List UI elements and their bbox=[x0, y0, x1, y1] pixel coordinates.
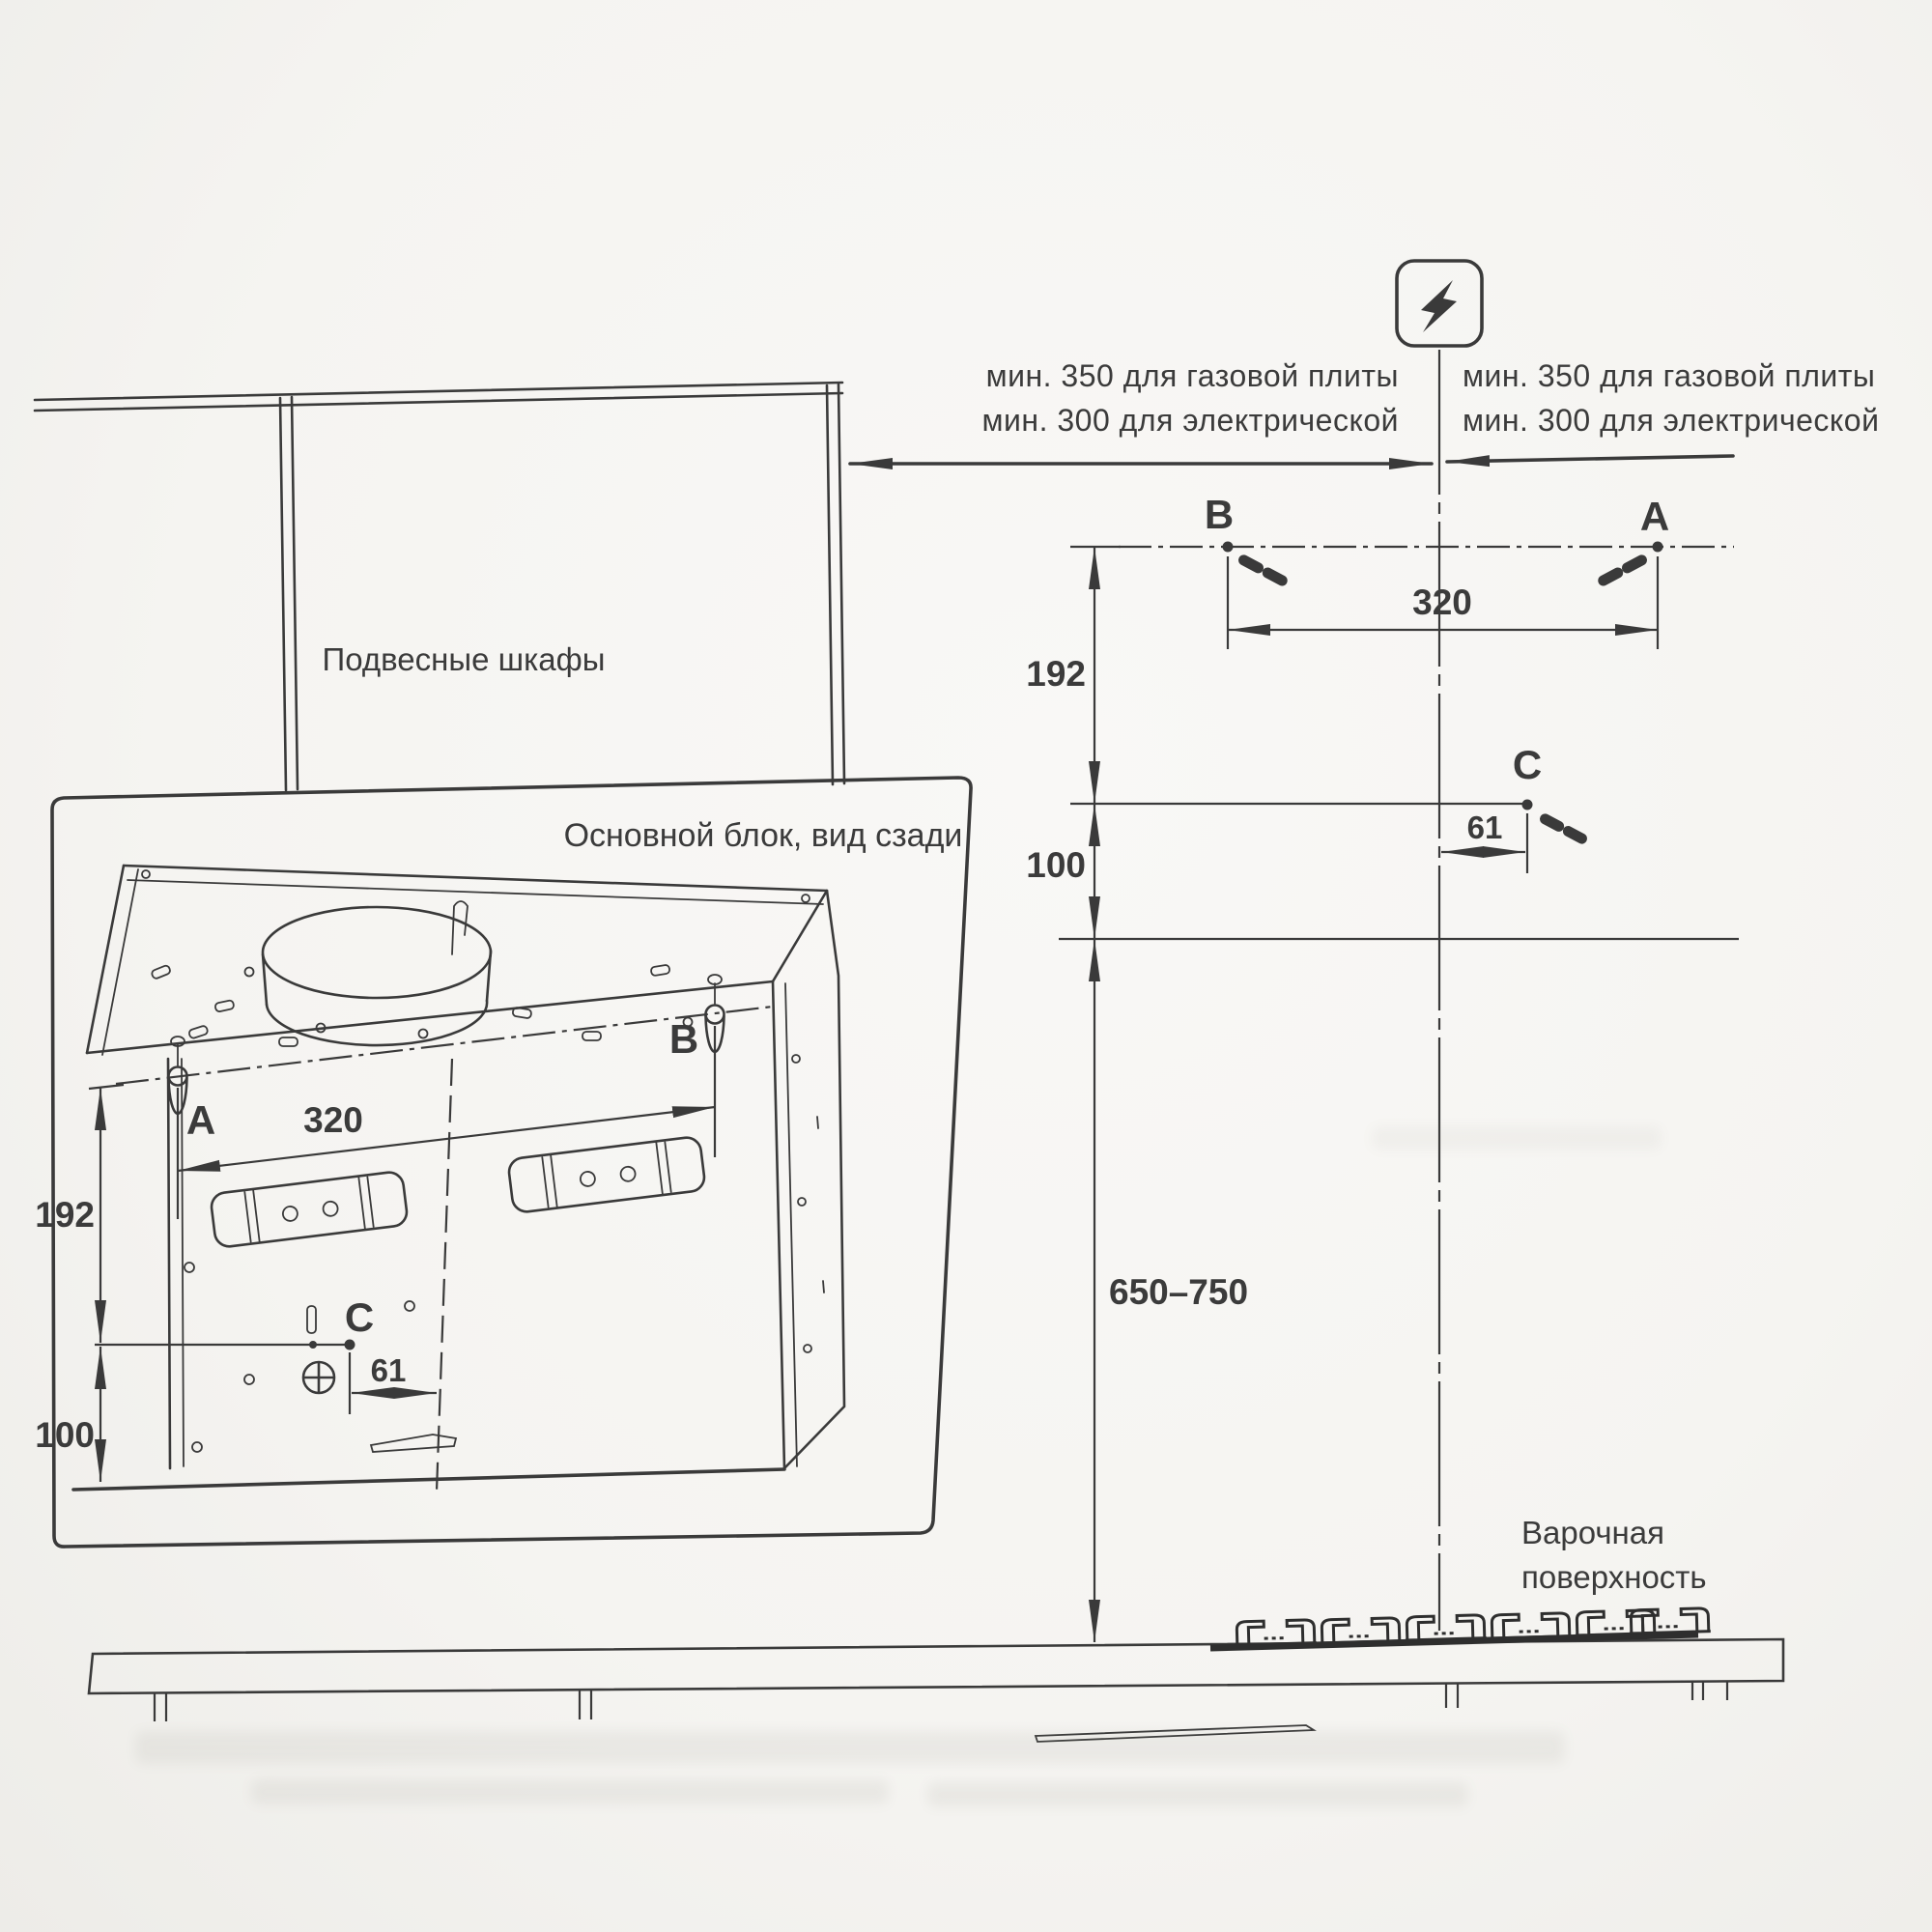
inset-192-top-tick bbox=[89, 1085, 124, 1089]
inset-center-dashed-line bbox=[437, 1059, 452, 1492]
scan-bleedthrough-smudge bbox=[927, 1782, 1468, 1807]
cooktop-label-line1: Варочная bbox=[1521, 1515, 1664, 1550]
wall-point-a bbox=[1653, 542, 1663, 553]
phillips-screw-icon bbox=[303, 1362, 334, 1393]
screw-icon-b bbox=[1244, 560, 1285, 582]
cabinet-right-edge-2 bbox=[838, 384, 844, 783]
hood-left-inner-edge-2 bbox=[182, 1059, 184, 1466]
screw-icon-a bbox=[1601, 560, 1641, 582]
inset-dim-61-label: 61 bbox=[371, 1352, 407, 1388]
hood-top-right-edge bbox=[773, 891, 827, 981]
cabinets-drawing: Подвесные шкафы bbox=[35, 383, 844, 790]
clearance-right-line2: мин. 300 для электрической bbox=[1463, 403, 1879, 438]
cabinet-divider-line-2 bbox=[292, 397, 298, 789]
hood-back-edge-outer bbox=[124, 866, 827, 891]
inset-rear-view: Основной блок, вид сзади bbox=[35, 778, 971, 1547]
top-face-holes bbox=[151, 964, 692, 1046]
inset-dim-100-label: 100 bbox=[35, 1415, 95, 1455]
panel-holes bbox=[185, 1055, 824, 1452]
cooktop-drawing: Варочная поверхность bbox=[89, 1515, 1783, 1742]
dim-192-label: 192 bbox=[1026, 654, 1086, 694]
wall-point-a-label: A bbox=[1640, 494, 1669, 539]
latch-piece bbox=[371, 1435, 456, 1452]
inset-title: Основной блок, вид сзади bbox=[564, 817, 963, 854]
clearance-arrow-right bbox=[1447, 456, 1733, 462]
wall-point-c bbox=[1522, 800, 1533, 810]
flange-screw-hole-left bbox=[142, 870, 150, 878]
hood-top-left-edge-inner bbox=[102, 869, 138, 1055]
slot-above-c bbox=[307, 1306, 316, 1333]
scan-bleedthrough-smudge bbox=[1372, 1126, 1662, 1150]
clearance-left-line2: мин. 300 для электрической bbox=[982, 403, 1399, 438]
cabinet-right-edge-1 bbox=[827, 385, 833, 784]
inset-point-a-label: A bbox=[186, 1097, 215, 1143]
hood-right-inner-edge-1 bbox=[773, 981, 784, 1468]
scan-bleedthrough-smudge bbox=[251, 1779, 889, 1804]
dim-650-750-label: 650–750 bbox=[1109, 1272, 1248, 1312]
inset-dim-320-label: 320 bbox=[303, 1100, 363, 1140]
inset-point-c bbox=[345, 1340, 355, 1350]
inset-point-c-label: C bbox=[345, 1294, 374, 1340]
inset-point-c-aux bbox=[309, 1341, 317, 1349]
clearance-right-line1: мин. 350 для газовой плиты bbox=[1463, 358, 1875, 393]
hood-bottom-edge bbox=[73, 1469, 784, 1490]
screw-icon-c bbox=[1546, 819, 1585, 840]
power-outlet-symbol bbox=[1397, 261, 1482, 346]
inset-dim-320-line bbox=[178, 1107, 715, 1171]
cooktop-label-line2: поверхность bbox=[1521, 1559, 1707, 1595]
wall-point-b-label: B bbox=[1205, 492, 1234, 537]
inset-dim-192-label: 192 bbox=[35, 1195, 95, 1235]
bracket-right bbox=[507, 1136, 705, 1213]
clearance-annotations: мин. 350 для газовой плиты мин. 300 для … bbox=[850, 358, 1879, 464]
diagram-canvas: Подвесные шкафы мин. 350 для газовой пли… bbox=[0, 0, 1932, 1932]
duct-collar-top bbox=[263, 907, 491, 998]
dim-100-label: 100 bbox=[1026, 845, 1086, 885]
cabinet-top-inner-line bbox=[35, 393, 842, 411]
bracket-left bbox=[210, 1171, 408, 1248]
dim-320-label: 320 bbox=[1412, 582, 1472, 622]
wall-drilling-diagram: B A 320 192 C 61 100 bbox=[1026, 350, 1739, 1642]
hood-top-left-edge bbox=[87, 866, 124, 1053]
wall-point-c-label: C bbox=[1513, 742, 1542, 787]
cabinet-divider-line-1 bbox=[280, 398, 286, 790]
cabinet-top-outer-line bbox=[35, 383, 842, 400]
duct-clip bbox=[452, 901, 468, 954]
dim-61-label: 61 bbox=[1467, 810, 1503, 845]
counter-slab bbox=[89, 1639, 1783, 1693]
scan-bleedthrough-smudge bbox=[135, 1731, 1565, 1764]
inset-point-b-label: B bbox=[669, 1016, 698, 1062]
hood-left-inner-edge-1 bbox=[168, 1059, 170, 1468]
flange-screw-hole-right bbox=[802, 895, 810, 902]
lightning-icon bbox=[1421, 280, 1457, 332]
cabinets-label: Подвесные шкафы bbox=[323, 641, 606, 677]
hood-right-panel-outline bbox=[784, 891, 844, 1468]
hood-back-edge-inner bbox=[128, 880, 823, 904]
clearance-left-line1: мин. 350 для газовой плиты bbox=[986, 358, 1399, 393]
wall-point-b bbox=[1223, 542, 1234, 553]
